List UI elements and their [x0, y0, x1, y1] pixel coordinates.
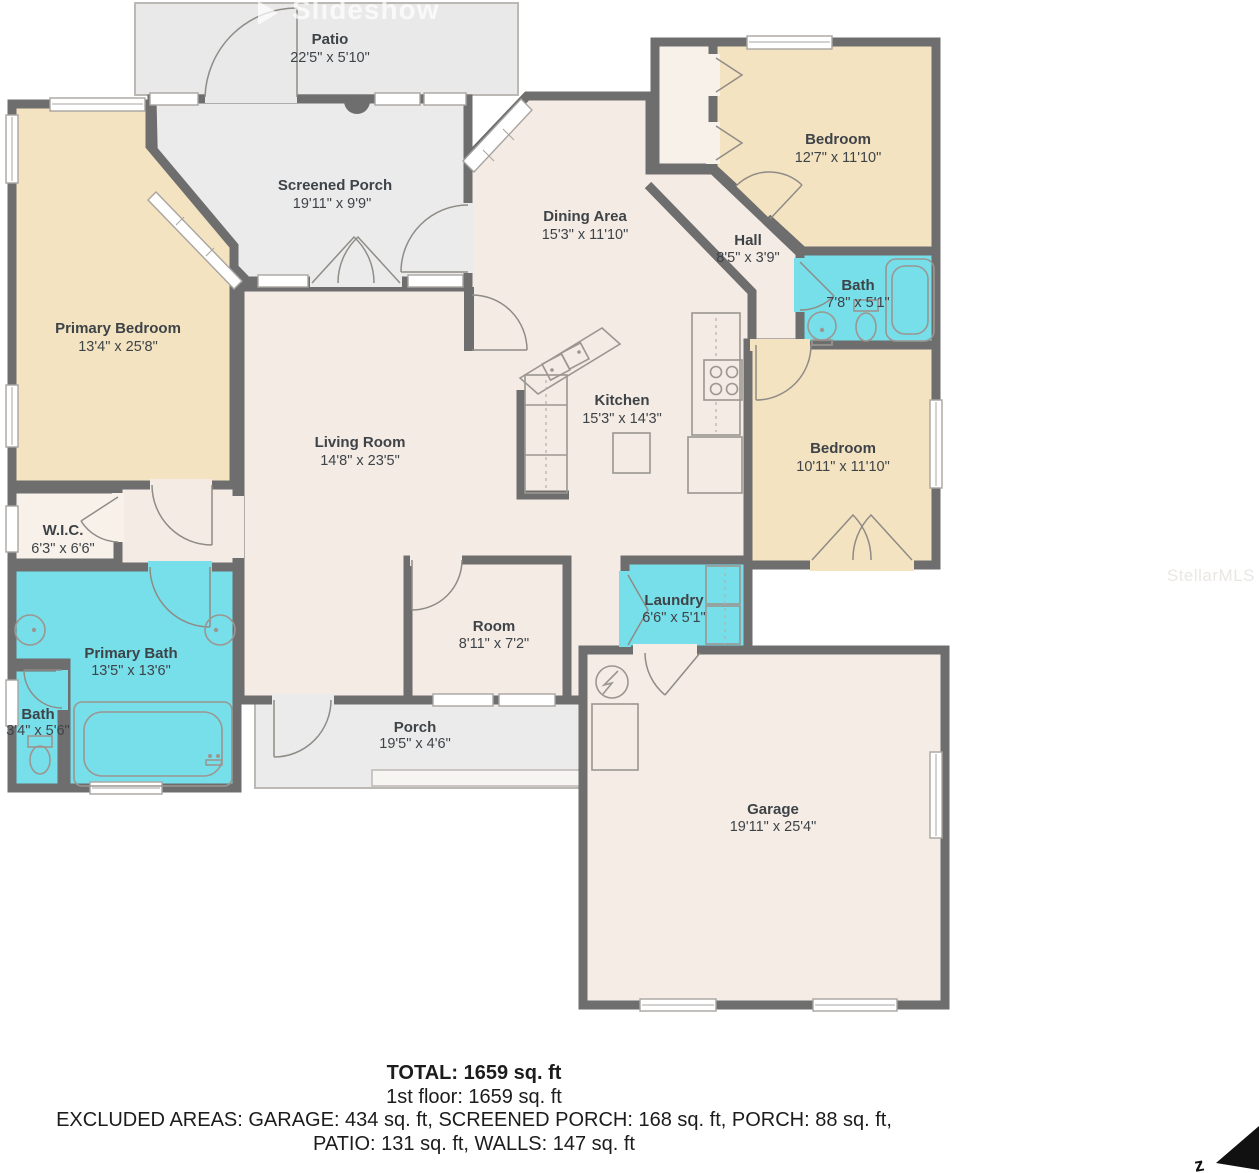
dining-label: Dining Area	[543, 208, 627, 225]
laundry-label: Laundry	[644, 592, 704, 609]
compass: z	[1193, 1126, 1259, 1173]
wic-label: W.I.C.	[43, 522, 84, 539]
bedroom-top-label: Bedroom	[805, 131, 871, 148]
patio-label: Patio	[312, 31, 349, 48]
dining-dims: 15'3" x 11'10"	[542, 227, 629, 243]
room-hallway	[118, 485, 237, 567]
excluded-areas-line2: PATIO: 131 sq. ft, WALLS: 147 sq. ft	[0, 1133, 948, 1157]
garage-label: Garage	[747, 801, 799, 818]
bath-top-dims: 7'8" x 5'1"	[826, 295, 889, 311]
bedroom-right-dims: 10'11" x 11'10"	[796, 459, 890, 475]
porch-step	[372, 770, 582, 786]
kitchen-label: Kitchen	[594, 392, 649, 409]
living-room-dims: 14'8" x 23'5"	[320, 453, 400, 469]
stellar-mls-watermark: StellarMLS	[1167, 566, 1255, 586]
patio-dims: 22'5" x 5'10"	[290, 50, 370, 66]
bath-small-dims: 3'4" x 5'6"	[6, 723, 69, 739]
primary-bath-dims: 13'5" x 13'6"	[91, 663, 171, 679]
porch-dims: 19'5" x 4'6"	[379, 736, 450, 752]
hall-label: Hall	[734, 232, 762, 249]
kitchen-dims: 15'3" x 14'3"	[582, 411, 662, 427]
wic-dims: 6'3" x 6'6"	[31, 541, 94, 557]
area-summary: TOTAL: 1659 sq. ft 1st floor: 1659 sq. f…	[0, 1062, 948, 1156]
bedroom-top-dims: 12'7" x 11'10"	[795, 150, 882, 166]
screened-porch-dims: 19'11" x 9'9"	[293, 196, 371, 212]
slideshow-label: Slideshow	[292, 0, 439, 26]
total-area-line: TOTAL: 1659 sq. ft	[0, 1062, 948, 1086]
dining-wall-stub	[464, 287, 474, 351]
garage-dims: 19'11" x 25'4"	[730, 819, 817, 835]
primary-bath-label: Primary Bath	[84, 645, 177, 662]
compass-north-label: z	[1193, 1155, 1206, 1173]
hall-dims: 8'5" x 3'9"	[716, 250, 779, 266]
laundry-dims: 6'6" x 5'1"	[642, 610, 705, 626]
first-floor-line: 1st floor: 1659 sq. ft	[0, 1086, 948, 1110]
room-bedroom-top-closet	[655, 42, 713, 168]
play-icon	[258, 1, 278, 25]
screened-porch-label: Screened Porch	[278, 177, 392, 194]
north-arrow-icon	[1216, 1126, 1259, 1170]
excluded-areas-line1: EXCLUDED AREAS: GARAGE: 434 sq. ft, SCRE…	[0, 1109, 948, 1133]
flex-room-label: Room	[473, 618, 516, 635]
porch-label: Porch	[394, 719, 437, 736]
living-room-label: Living Room	[315, 434, 406, 451]
floorplan-page: Patio 22'5" x 5'10" Screened Porch 19'11…	[0, 0, 1259, 1173]
floorplan-drawing: Patio 22'5" x 5'10" Screened Porch 19'11…	[0, 0, 1259, 1173]
primary-bedroom-label: Primary Bedroom	[55, 320, 181, 337]
primary-bedroom-dims: 13'4" x 25'8"	[78, 339, 158, 355]
bath-top-label: Bath	[841, 277, 874, 294]
bath-small-label: Bath	[21, 706, 54, 723]
slideshow-button[interactable]: Slideshow	[258, 0, 439, 26]
flex-room-dims: 8'11" x 7'2"	[459, 636, 529, 652]
bedroom-right-label: Bedroom	[810, 440, 876, 457]
